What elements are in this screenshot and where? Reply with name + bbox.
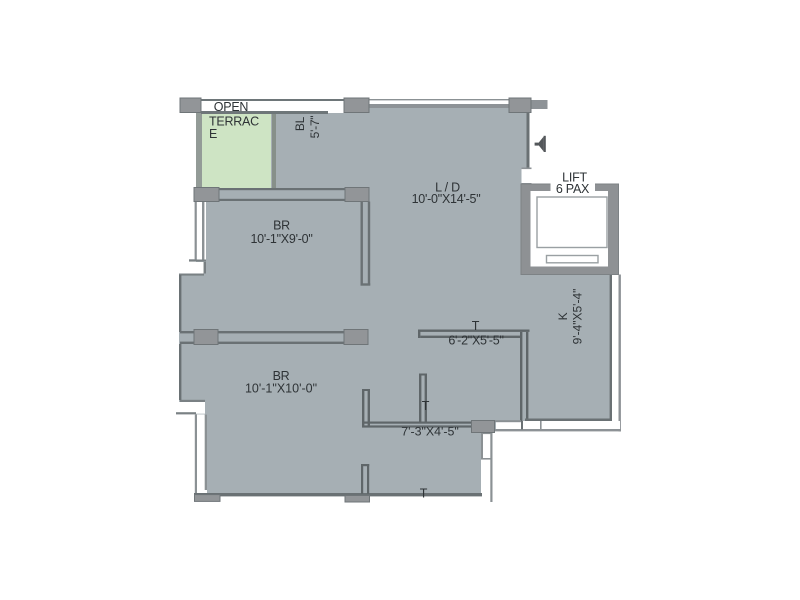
svg-text:6 PAX: 6 PAX (556, 182, 590, 196)
svg-text:BL: BL (293, 116, 307, 131)
svg-text:10'-1"X10'-0": 10'-1"X10'-0" (245, 382, 317, 396)
svg-text:7'-3"X4'-5": 7'-3"X4'-5" (401, 425, 459, 439)
svg-text:6'-2"X5'-5": 6'-2"X5'-5" (448, 334, 503, 348)
svg-text:E: E (209, 127, 217, 141)
svg-text:10'-0"X14'-5": 10'-0"X14'-5" (412, 192, 481, 206)
svg-text:BR: BR (273, 219, 290, 233)
svg-text:T: T (422, 399, 430, 413)
svg-text:9'-4"X5'-4": 9'-4"X5'-4" (571, 289, 585, 345)
svg-text:10'-1"X9'-0": 10'-1"X9'-0" (250, 232, 312, 246)
svg-text:OPEN: OPEN (214, 100, 249, 114)
svg-text:T: T (420, 487, 428, 501)
svg-text:K: K (556, 312, 570, 320)
svg-text:T: T (472, 319, 480, 333)
svg-text:5'-7": 5'-7" (308, 116, 322, 139)
